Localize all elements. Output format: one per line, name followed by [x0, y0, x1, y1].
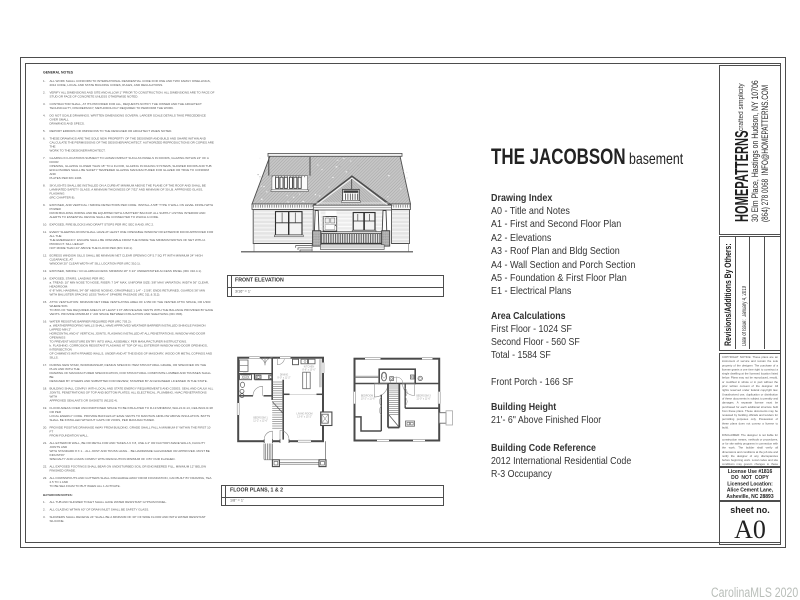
- svg-text:11'-2" x 12'-6": 11'-2" x 12'-6": [253, 420, 268, 423]
- svg-text:10'-2" x 11'-6": 10'-2" x 11'-6": [361, 398, 376, 401]
- svg-text:13'-6" x 15'-2": 13'-6" x 15'-2": [297, 416, 312, 419]
- svg-text:9'-0" x 11'-2": 9'-0" x 11'-2": [277, 377, 290, 380]
- svg-text:BATH: BATH: [243, 371, 249, 374]
- svg-text:8'-6" x 10'-0": 8'-6" x 10'-0": [302, 369, 316, 372]
- svg-text:11'-0" x 11'-6": 11'-0" x 11'-6": [416, 398, 430, 401]
